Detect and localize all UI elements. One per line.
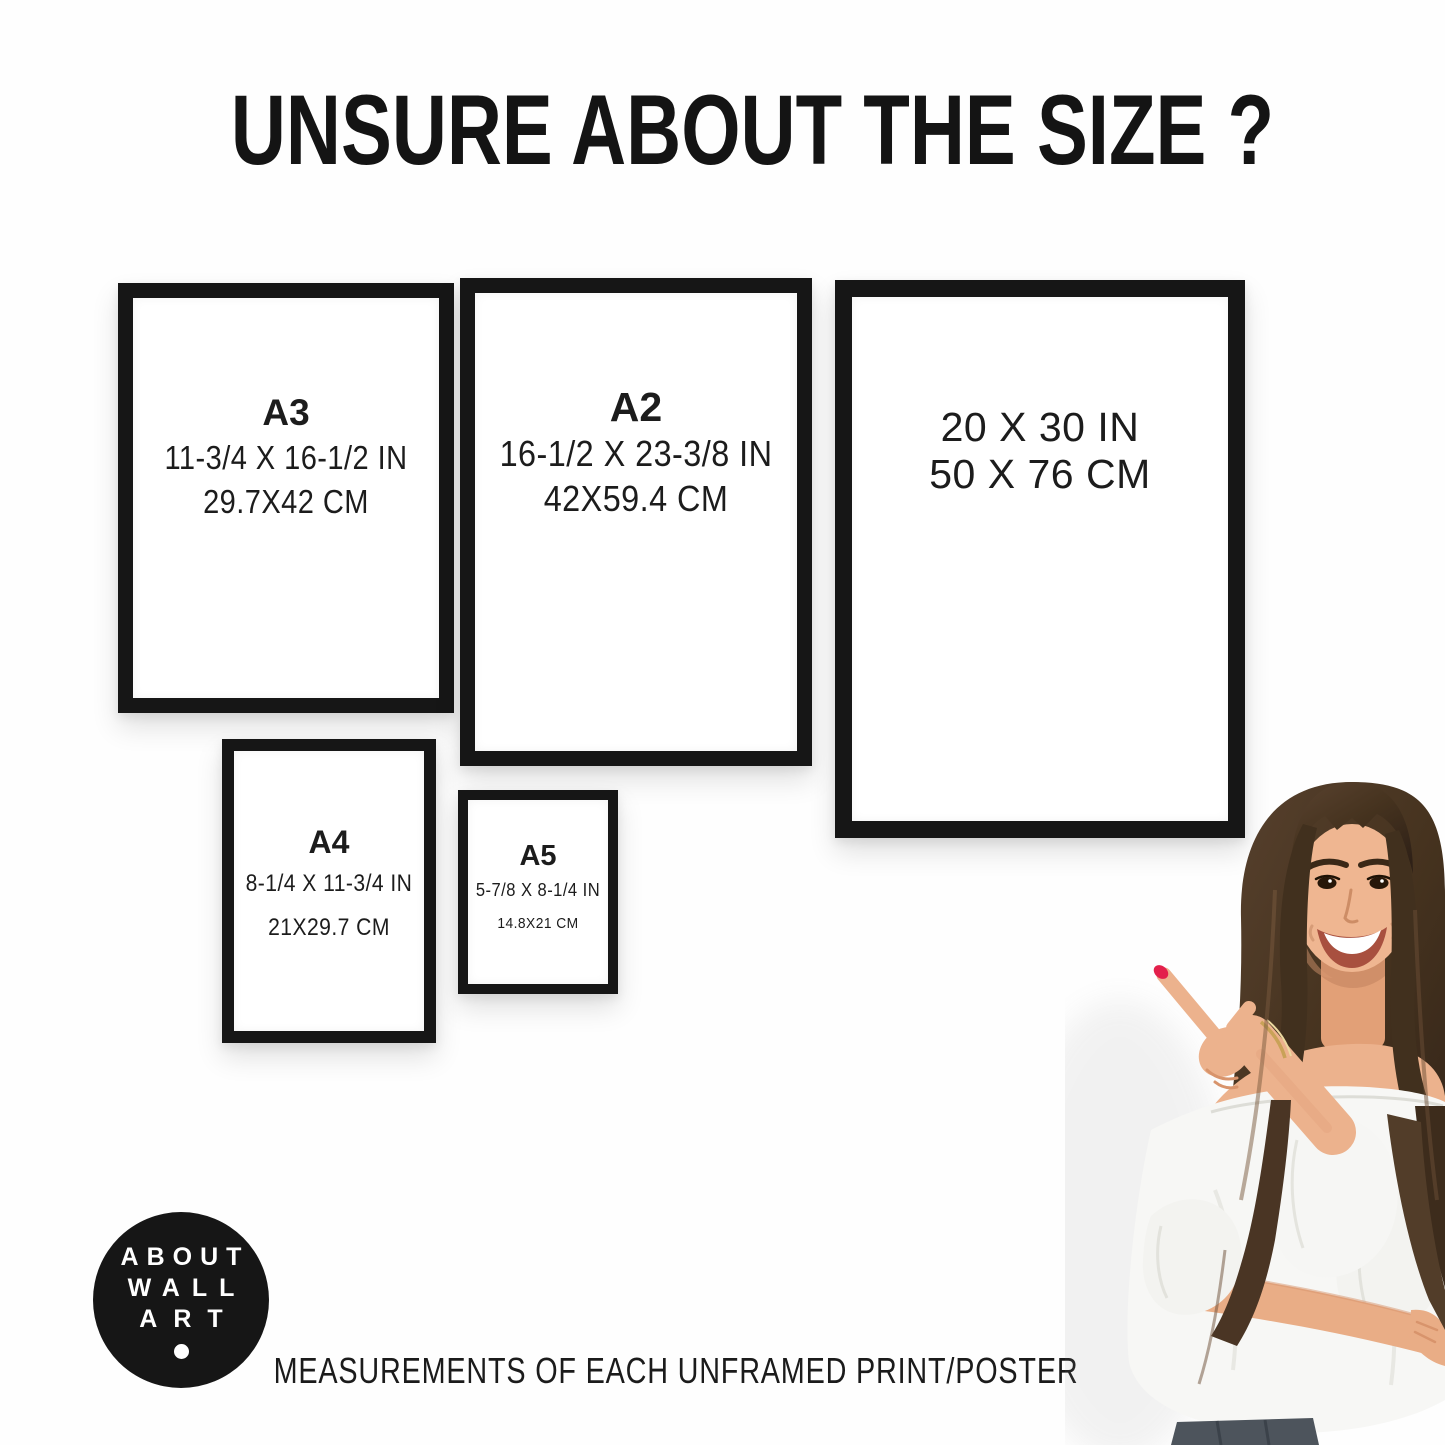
frame-a3-content: A3 11-3/4 X 16-1/2 IN 29.7X42 CM bbox=[133, 390, 439, 524]
frame-a4-content: A4 8-1/4 X 11-3/4 IN 21X29.7 CM bbox=[234, 822, 424, 950]
frame-a4-label: A4 bbox=[234, 822, 424, 862]
logo-text-art: ART bbox=[123, 1304, 238, 1335]
footer-caption: MEASUREMENTS OF EACH UNFRAMED PRINT/POST… bbox=[135, 1350, 1217, 1392]
eye-left-highlight bbox=[1328, 879, 1332, 883]
frame-a3-size-cm: 29.7X42 CM bbox=[151, 480, 420, 524]
frame-a3-size-inches: 11-3/4 X 16-1/2 IN bbox=[151, 436, 420, 480]
model-photo bbox=[1065, 770, 1445, 1445]
frame-a5-size-cm: 14.8X21 CM bbox=[474, 907, 603, 940]
frame-a5-label: A5 bbox=[468, 838, 608, 874]
eye-right bbox=[1370, 877, 1389, 889]
frame-a2-label: A2 bbox=[475, 383, 797, 431]
frame-a4-size-cm: 21X29.7 CM bbox=[245, 906, 412, 950]
index-finger bbox=[1164, 975, 1215, 1036]
logo-text-wall: WALL bbox=[116, 1273, 247, 1304]
frame-a4: A4 8-1/4 X 11-3/4 IN 21X29.7 CM bbox=[222, 739, 436, 1043]
eye-left bbox=[1318, 877, 1337, 889]
frame-20x30: 20 X 30 IN 50 X 76 CM bbox=[835, 280, 1245, 838]
frame-a5-content: A5 5-7/8 X 8-1/4 IN 14.8X21 CM bbox=[468, 838, 608, 940]
frame-20x30-size-cm: 50 X 76 CM bbox=[852, 451, 1228, 498]
eye-right-highlight bbox=[1380, 879, 1384, 883]
frame-a3-label: A3 bbox=[133, 390, 439, 436]
frame-a5: A5 5-7/8 X 8-1/4 IN 14.8X21 CM bbox=[458, 790, 618, 994]
frame-a2-content: A2 16-1/2 X 23-3/8 IN 42X59.4 CM bbox=[475, 383, 797, 521]
page-title: UNSURE ABOUT THE SIZE ? bbox=[196, 78, 1309, 182]
frame-a3: A3 11-3/4 X 16-1/2 IN 29.7X42 CM bbox=[118, 283, 454, 713]
size-guide-infographic: UNSURE ABOUT THE SIZE ? A3 11-3/4 X 16-1… bbox=[0, 0, 1445, 1445]
frame-a2-size-inches: 16-1/2 X 23-3/8 IN bbox=[491, 431, 781, 476]
frame-a5-size-inches: 5-7/8 X 8-1/4 IN bbox=[474, 874, 603, 907]
jeans bbox=[1171, 1418, 1319, 1445]
frame-20x30-size-inches: 20 X 30 IN bbox=[852, 404, 1228, 451]
frame-a4-size-inches: 8-1/4 X 11-3/4 IN bbox=[245, 862, 412, 906]
frame-a2-size-cm: 42X59.4 CM bbox=[491, 476, 781, 521]
frame-20x30-content: 20 X 30 IN 50 X 76 CM bbox=[852, 404, 1228, 498]
frame-a2: A2 16-1/2 X 23-3/8 IN 42X59.4 CM bbox=[460, 278, 812, 766]
logo-text-about: ABOUT bbox=[113, 1242, 250, 1273]
